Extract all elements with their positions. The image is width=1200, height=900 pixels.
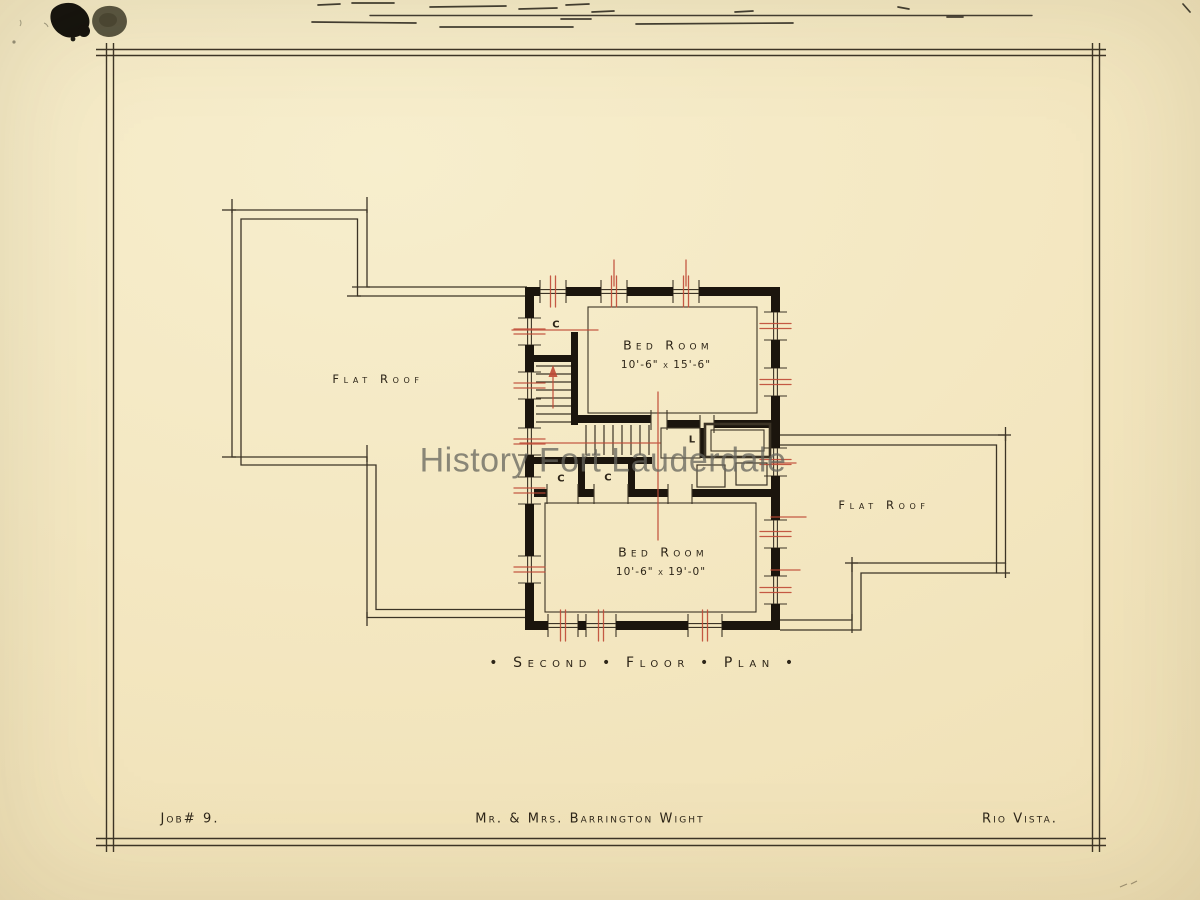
client-name-label: Mr. & Mrs. Barrington Wight: [475, 812, 704, 827]
watermark-text: History Fort Lauderdale: [420, 442, 787, 481]
bedroom2-dims: 10'-6" x 19'-0": [616, 566, 706, 578]
location-label: Rio Vista.: [982, 812, 1058, 827]
bedroom1-dims: 10'-6" x 15'-6": [621, 359, 711, 371]
closet-label-2: C: [557, 474, 565, 485]
bedroom1-name: Bed Room: [623, 338, 713, 353]
closet-label-1: C: [552, 320, 560, 331]
scanned-drawing-sheet: Flat Roof Flat Roof Bed Room 10'-6" x 15…: [0, 0, 1200, 900]
stair-direction-arrow: [549, 365, 558, 408]
flat-roof-left-outline: [222, 197, 527, 626]
plan-title: • Second • Floor • Plan •: [489, 655, 799, 671]
closet-label-3: C: [604, 473, 612, 484]
bedroom2-name: Bed Room: [618, 545, 708, 560]
scan-streaks: [312, 3, 1190, 27]
flat-roof-right-outline: [780, 427, 1011, 633]
flat-roof-label-right: Flat Roof: [838, 498, 929, 512]
job-number-label: Job# 9.: [160, 812, 219, 827]
linen-label: L: [689, 435, 696, 446]
flat-roof-label-left: Flat Roof: [332, 372, 423, 386]
